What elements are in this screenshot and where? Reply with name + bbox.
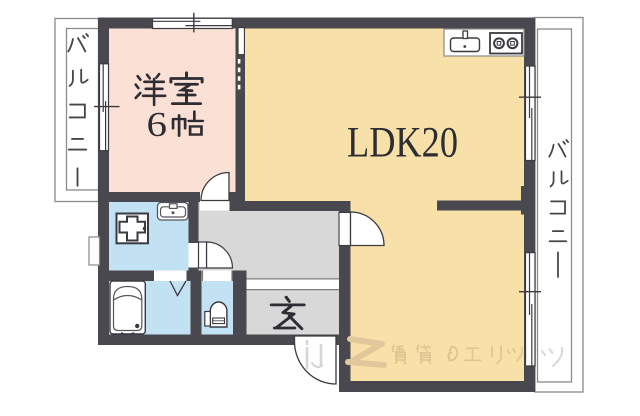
svg-text:LDK20: LDK20 — [347, 120, 458, 167]
svg-text:6: 6 — [147, 105, 168, 144]
